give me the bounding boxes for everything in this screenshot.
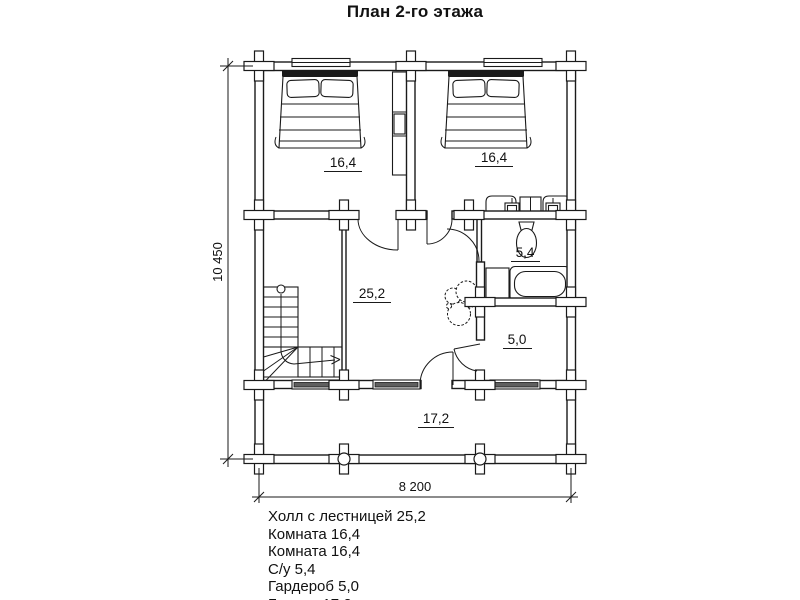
legend-item-wardrobe: Гардероб 5,0 (268, 578, 426, 596)
hall-area-label: 25,2 (359, 286, 385, 301)
door-wardrobe (454, 344, 480, 371)
legend-item-room-2: Комната 16,4 (268, 543, 426, 561)
door-bedroom-1 (358, 219, 398, 250)
staircase (264, 285, 345, 383)
dimension-width: 8 200 (252, 468, 578, 503)
legend-item-balcony: Балкон 17,2 (268, 596, 426, 600)
window-wardrobe (490, 380, 540, 389)
bathroom-area-label: 5,4 (516, 245, 535, 260)
door-bathroom (447, 229, 479, 261)
height-dimension-label: 10 450 (210, 242, 225, 282)
door-bedroom-2 (427, 219, 452, 244)
bathtub (486, 267, 570, 302)
legend-item-bathroom: С/у 5,4 (268, 561, 426, 579)
balcony-area-label: 17,2 (423, 411, 449, 426)
bedroom-2-area-label: 16,4 (481, 150, 508, 165)
width-dimension-label: 8 200 (399, 479, 432, 494)
legend-item-room-1: Комната 16,4 (268, 526, 426, 544)
dimension-height: 10 450 (210, 58, 253, 467)
bed-bedroom-1 (275, 70, 365, 148)
wardrobe-area-label: 5,0 (508, 332, 527, 347)
window-bedroom-2 (484, 59, 542, 67)
window-bedroom-1 (292, 59, 350, 67)
legend-item-hall: Холл с лестницей 25,2 (268, 508, 426, 526)
stair-newel-post (277, 285, 285, 293)
balcony-post (474, 453, 486, 465)
bed-bedroom-2 (441, 70, 531, 148)
bedroom-1-area-label: 16,4 (330, 155, 357, 170)
floor-plan-page: План 2-го этажа (0, 0, 800, 600)
window-hall-right (373, 380, 420, 389)
door-balcony (420, 352, 453, 385)
balcony-post (338, 453, 350, 465)
room-legend: Холл с лестницей 25,2 Комната 16,4 Комна… (268, 508, 426, 600)
